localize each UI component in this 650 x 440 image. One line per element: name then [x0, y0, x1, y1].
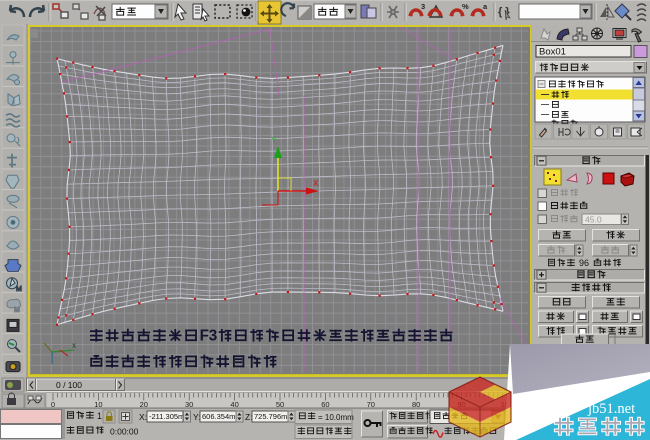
svg-text:jb51.net: jb51.net — [587, 401, 635, 417]
